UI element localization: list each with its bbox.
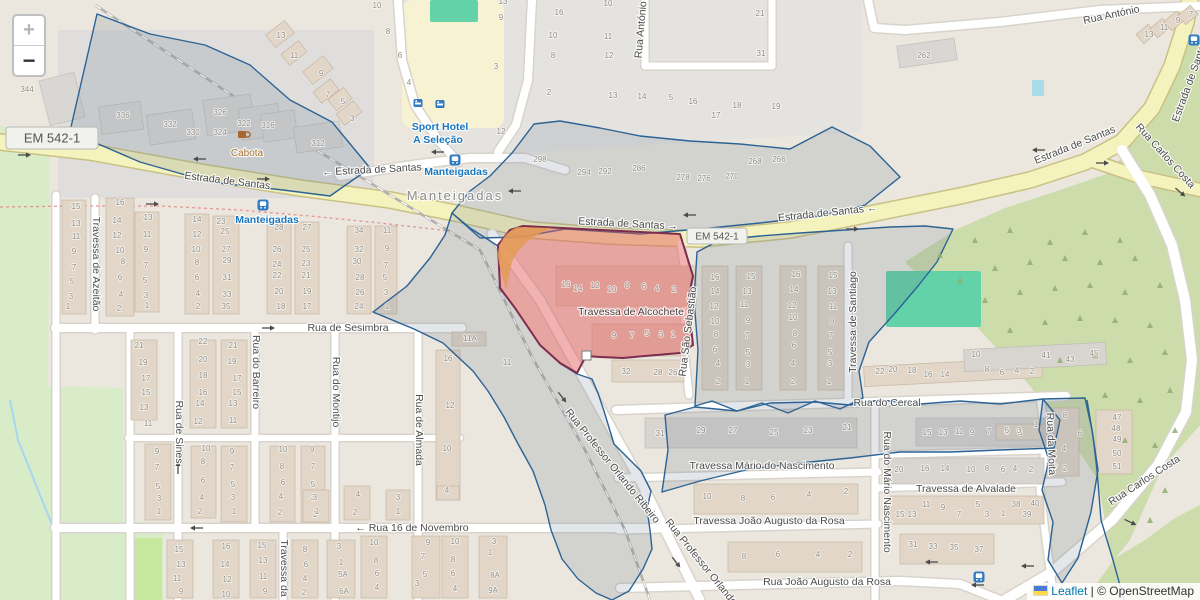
- house-number: 5: [156, 482, 161, 491]
- house-number: 8: [195, 258, 200, 267]
- poi-label: Manteigadas: [424, 166, 488, 178]
- hotel-icon-bed: [437, 104, 443, 106]
- house-number: 20: [889, 365, 898, 374]
- house-number: 294: [577, 168, 591, 177]
- building: [190, 340, 216, 428]
- house-number: 5: [669, 93, 674, 102]
- building: [221, 340, 247, 428]
- zoom-out-button[interactable]: −: [14, 46, 44, 75]
- house-number: 17: [142, 374, 151, 383]
- house-number: 16: [222, 542, 231, 551]
- house-number: 13: [177, 560, 186, 569]
- house-number: 1: [385, 302, 390, 311]
- house-number: 5: [311, 480, 316, 489]
- house-number: 31: [223, 273, 232, 282]
- house-number: 4: [791, 359, 796, 368]
- house-number: 8: [985, 365, 990, 374]
- house-number: 9: [970, 428, 975, 437]
- house-number: 27: [303, 223, 312, 232]
- hotel-icon: [414, 99, 423, 107]
- house-number: 9: [426, 538, 431, 547]
- house-number: 8: [280, 462, 285, 471]
- house-number: 6: [375, 569, 380, 578]
- house-number: 4: [816, 550, 821, 559]
- street-label: ← Rua 16 de Novembro: [355, 522, 468, 534]
- house-number: 286: [632, 164, 646, 173]
- house-number: 278: [676, 173, 690, 182]
- attribution-bar: Leaflet | © OpenStreetMap: [1027, 583, 1200, 600]
- house-number: 6: [1000, 368, 1005, 377]
- house-number: 6: [1078, 429, 1083, 438]
- house-number: 4: [196, 289, 201, 298]
- house-number: 18: [908, 366, 917, 375]
- house-number: 11A: [463, 334, 477, 343]
- house-number: 6: [304, 560, 309, 569]
- house-number: 6: [771, 493, 776, 502]
- house-number: 6: [118, 273, 123, 282]
- house-number: 3: [157, 494, 162, 503]
- house-number: 2: [196, 302, 201, 311]
- house-number: 14: [790, 285, 799, 294]
- house-number: 4: [1013, 464, 1018, 473]
- street-label: Rua de Sesimbra: [307, 322, 388, 334]
- house-number: 14: [711, 287, 720, 296]
- street-label: Travessa de Azeitão: [90, 217, 102, 312]
- house-number: 34: [355, 226, 364, 235]
- house-number: 16: [924, 370, 933, 379]
- house-number: 5: [828, 348, 833, 357]
- house-number: 13: [828, 287, 837, 296]
- street-label: Travessa João Augusto da Rosa: [693, 515, 845, 527]
- house-number: 11: [143, 230, 152, 239]
- house-number: 3: [1017, 426, 1022, 435]
- house-number: 3: [144, 291, 149, 300]
- house-number: 8A: [490, 571, 500, 580]
- bus-icon-wheel: [264, 207, 266, 209]
- house-number: 262: [917, 51, 931, 60]
- house-number: 8: [201, 457, 206, 466]
- house-number: 11: [604, 32, 613, 41]
- house-number: 16: [444, 354, 453, 363]
- hotel-icon-pillow: [437, 101, 439, 103]
- house-number: 48: [1112, 424, 1121, 433]
- house-number: 6: [451, 569, 456, 578]
- house-number: 40: [1031, 499, 1040, 508]
- house-number: 1: [1001, 509, 1006, 518]
- house-number: 268: [748, 157, 762, 166]
- vertex-marker[interactable]: [582, 351, 591, 360]
- house-number: 3: [350, 114, 355, 123]
- leaflet-link[interactable]: Leaflet: [1051, 584, 1087, 598]
- house-number: 3: [828, 359, 833, 368]
- house-number: 2: [1030, 367, 1035, 376]
- house-number: 20: [895, 465, 904, 474]
- house-number: 8: [121, 257, 126, 266]
- bus-icon-body: [452, 156, 458, 161]
- house-number: 16: [562, 280, 571, 289]
- house-number: 15: [233, 388, 242, 397]
- house-number: 4: [200, 493, 205, 502]
- house-number: 5: [231, 480, 236, 489]
- house-number: 330: [186, 128, 200, 137]
- house-number: 13: [499, 0, 508, 6]
- house-number: 51: [1113, 462, 1122, 471]
- house-number: 4: [279, 492, 284, 501]
- map-canvas[interactable]: EM 542-1EM 542-1Estrada de Santas← Estra…: [0, 0, 1200, 600]
- house-number: 13: [743, 287, 752, 296]
- cafe-label: Cabota: [231, 148, 264, 159]
- house-number: 26: [669, 368, 678, 377]
- house-number: 292: [598, 167, 612, 176]
- poi-label: A Seleção: [413, 134, 463, 146]
- zoom-in-button[interactable]: +: [14, 16, 44, 46]
- house-number: 7: [72, 263, 77, 272]
- house-number: 20: [199, 355, 208, 364]
- house-number: 14: [221, 560, 230, 569]
- house-number: 4: [655, 284, 660, 293]
- building: [728, 542, 862, 572]
- street-label: Rua João Augusto da Rosa: [763, 576, 891, 588]
- house-number: 6: [398, 51, 403, 60]
- house-number: 9: [612, 331, 617, 340]
- house-number: 15: [923, 428, 932, 437]
- house-number: 14: [941, 370, 950, 379]
- house-number: 8: [386, 27, 391, 36]
- house-number: 20: [275, 287, 284, 296]
- street-label: Rua da Moita: [1044, 412, 1058, 475]
- house-number: 13: [144, 213, 153, 222]
- house-number: 10: [789, 313, 798, 322]
- house-number: 11: [173, 574, 182, 583]
- house-number: 7: [155, 463, 160, 472]
- house-number: 8: [714, 330, 719, 339]
- house-number: 8: [303, 545, 308, 554]
- flag-bottom-stripe: [1034, 591, 1047, 596]
- house-number: 3: [337, 542, 342, 551]
- house-number: 9: [230, 447, 235, 456]
- house-number: 7: [311, 462, 316, 471]
- house-number: 6: [201, 476, 206, 485]
- bus-icon-body: [976, 573, 982, 578]
- house-number: 21: [229, 341, 238, 350]
- house-number: 38: [1012, 500, 1021, 509]
- building: [436, 350, 460, 500]
- house-number: 7: [144, 261, 149, 270]
- house-number: 16: [689, 97, 698, 106]
- house-number: 12: [605, 51, 614, 60]
- bus-stop-icon: [974, 572, 985, 583]
- house-number: 11: [829, 302, 838, 311]
- house-number: 6: [792, 341, 797, 350]
- house-number: 7: [1189, 10, 1194, 19]
- house-number: 1: [339, 558, 344, 567]
- bus-icon-wheel: [456, 162, 458, 164]
- house-number: 18: [733, 101, 742, 110]
- house-number: 41: [1042, 351, 1051, 360]
- building: [295, 222, 319, 314]
- hotel-icon-bed: [415, 103, 421, 105]
- house-number: 1: [745, 377, 750, 386]
- hotel-icon-pillow: [415, 100, 417, 102]
- house-number: 10: [370, 538, 379, 547]
- house-number: 15: [142, 388, 151, 397]
- house-number: 10: [549, 31, 558, 40]
- building: [62, 200, 86, 314]
- house-number: 28: [275, 223, 284, 232]
- house-number: 9: [941, 503, 946, 512]
- bus-icon-wheel: [452, 162, 454, 164]
- street-label: Rua do Montijo: [330, 357, 342, 428]
- house-number: 8: [741, 494, 746, 503]
- house-number: 35: [222, 302, 231, 311]
- house-number: 17: [712, 111, 721, 120]
- house-number: 7: [326, 90, 331, 99]
- house-number: 1: [396, 507, 401, 516]
- house-number: 11: [740, 300, 749, 309]
- house-number: 3: [415, 579, 420, 588]
- house-number: 8: [451, 555, 456, 564]
- house-number: 6: [642, 282, 647, 291]
- house-number: 2: [791, 377, 796, 386]
- road-ref-label: EM 542-1: [695, 232, 739, 243]
- house-number: 13: [277, 31, 286, 40]
- house-number: 4: [303, 574, 308, 583]
- bus-stop-icon: [258, 200, 269, 211]
- house-number: 13: [1145, 30, 1154, 39]
- house-number: 3: [494, 62, 499, 71]
- house-number: 22: [273, 271, 282, 280]
- house-number: 3: [492, 537, 497, 546]
- house-number: 3: [231, 493, 236, 502]
- sports-pitch-top: [430, 0, 478, 22]
- house-number: 9: [179, 587, 184, 596]
- street-label: Travessa de Santiago: [847, 271, 859, 373]
- house-number: 9: [319, 69, 324, 78]
- bus-icon-wheel: [976, 579, 978, 581]
- house-number: 7: [384, 261, 389, 270]
- poi-label: Sport Hotel: [412, 121, 469, 133]
- house-number: 4: [1062, 444, 1067, 453]
- house-number: 23: [302, 259, 311, 268]
- house-number: 8: [985, 464, 990, 473]
- house-number: 37: [975, 545, 984, 554]
- bus-icon-wheel: [260, 207, 262, 209]
- house-number: 11: [922, 500, 931, 509]
- house-number: 8: [1063, 411, 1068, 420]
- house-number: 26: [356, 288, 365, 297]
- house-number: 270: [725, 172, 739, 181]
- house-number: 9: [385, 244, 390, 253]
- house-number: 8: [742, 552, 747, 561]
- bus-icon-wheel: [980, 579, 982, 581]
- house-number: 9: [499, 13, 504, 22]
- house-number: 336: [116, 111, 130, 120]
- house-number: 27: [729, 426, 738, 435]
- house-number: 33: [929, 542, 938, 551]
- house-number: 2: [117, 304, 122, 313]
- building: [347, 226, 371, 314]
- house-number: 4: [1015, 366, 1020, 375]
- house-number: 10: [703, 492, 712, 501]
- house-number: 11: [144, 419, 153, 428]
- house-number: 10: [116, 246, 125, 255]
- house-number: 9: [263, 587, 268, 596]
- house-number: 10: [451, 537, 460, 546]
- house-number: 1: [145, 301, 150, 310]
- house-number: 16: [792, 270, 801, 279]
- place-label: Manteigadas: [407, 188, 503, 203]
- house-number: 10: [192, 245, 201, 254]
- house-number: 18: [199, 371, 208, 380]
- house-number: 6: [776, 550, 781, 559]
- bus-icon-wheel: [1191, 42, 1193, 44]
- house-number: 12: [194, 417, 203, 426]
- house-number: 6: [713, 345, 718, 354]
- house-number: 22: [876, 367, 885, 376]
- house-number: 13: [140, 403, 149, 412]
- house-number: 11: [503, 358, 512, 367]
- house-number: 15: [175, 545, 184, 554]
- house-number: 14: [574, 284, 583, 293]
- house-number: 5A: [338, 570, 348, 579]
- house-number: 276: [697, 174, 711, 183]
- house-number: 3: [313, 493, 318, 502]
- house-number: 14: [941, 464, 950, 473]
- house-number: 6: [1001, 465, 1006, 474]
- house-number: 4: [119, 290, 124, 299]
- house-number: 324: [213, 128, 227, 137]
- house-number: 10: [202, 444, 211, 453]
- house-number: 1: [232, 507, 237, 516]
- house-number: 266: [772, 155, 786, 164]
- house-number: 4: [445, 486, 450, 495]
- bus-icon-body: [1191, 36, 1197, 41]
- house-number: 14: [196, 399, 205, 408]
- zoom-control: + −: [12, 14, 46, 77]
- house-number: 13: [609, 91, 618, 100]
- house-number: 15: [896, 510, 905, 519]
- house-number: 7: [421, 552, 426, 561]
- house-number: 5: [143, 276, 148, 285]
- house-number: 10: [443, 444, 452, 453]
- house-number: 2: [716, 377, 721, 386]
- house-number: 25: [770, 428, 779, 437]
- house-number: 3: [659, 330, 664, 339]
- house-number: 33: [223, 290, 232, 299]
- house-number: 16: [555, 8, 564, 17]
- house-number: 2: [844, 487, 849, 496]
- house-number: 16: [711, 273, 720, 282]
- house-number: 31: [757, 49, 766, 58]
- house-number: 15: [747, 272, 756, 281]
- pool: [1032, 80, 1044, 96]
- house-number: 5: [976, 500, 981, 509]
- house-number: 28: [356, 273, 365, 282]
- house-number: 7: [957, 510, 962, 519]
- house-number: 12: [193, 230, 202, 239]
- house-number: 4: [453, 584, 458, 593]
- street-label: Travessa de Alvalade: [916, 483, 1016, 495]
- house-number: 14: [113, 216, 122, 225]
- house-number: 6: [281, 478, 286, 487]
- house-number: 13: [939, 428, 948, 437]
- house-number: 25: [302, 245, 311, 254]
- map-tiles: EM 542-1EM 542-1Estrada de Santas← Estra…: [0, 0, 1200, 600]
- house-number: 21: [756, 9, 765, 18]
- street-label: Travessa da: [278, 539, 290, 597]
- house-number: 49: [1113, 435, 1122, 444]
- house-number: 18: [277, 302, 286, 311]
- house-number: 316: [261, 121, 275, 130]
- house-number: 13: [72, 219, 81, 228]
- house-number: 11: [72, 232, 81, 241]
- house-number: 2: [1063, 464, 1068, 473]
- house-number: 23: [804, 426, 813, 435]
- house-number: 326: [213, 108, 227, 117]
- bus-stop-icon: [450, 155, 461, 166]
- house-number: 11: [259, 572, 268, 581]
- house-number: 19: [139, 358, 148, 367]
- house-number: 13: [229, 399, 238, 408]
- house-number: 5: [645, 329, 650, 338]
- house-number: 7: [745, 331, 750, 340]
- house-number: 9A: [488, 586, 498, 595]
- house-number: 10: [967, 465, 976, 474]
- house-number: 2: [353, 508, 358, 517]
- house-number: 4: [356, 490, 361, 499]
- house-number: 4: [375, 583, 380, 592]
- house-number: 3: [985, 510, 990, 519]
- house-number: 9: [1176, 16, 1181, 25]
- house-number: 11: [290, 51, 299, 60]
- house-number: 1: [315, 507, 320, 516]
- house-number: 43: [1066, 355, 1075, 364]
- house-number: 21: [135, 341, 144, 350]
- house-number: 3: [69, 292, 74, 301]
- house-number: 2: [302, 588, 307, 597]
- house-number: 9: [746, 316, 751, 325]
- street-label: Rua do Cercal: [853, 397, 920, 409]
- bus-icon-body: [260, 201, 266, 206]
- house-number: 11: [1160, 23, 1169, 32]
- house-number: 10: [279, 445, 288, 454]
- house-number: 5: [70, 277, 75, 286]
- house-number: 4: [407, 78, 412, 87]
- house-number: 10: [604, 0, 613, 8]
- house-number: 11: [955, 427, 964, 436]
- building: [694, 484, 858, 514]
- house-number: 332: [163, 120, 177, 129]
- house-number: 15: [829, 271, 838, 280]
- house-number: 14: [193, 215, 202, 224]
- house-number: 12: [591, 281, 600, 290]
- house-number: 9: [72, 247, 77, 256]
- house-number: 322: [237, 119, 251, 128]
- house-number: 13: [908, 510, 917, 519]
- house-number: 11: [229, 416, 238, 425]
- house-number: 35: [950, 543, 959, 552]
- house-number: 2: [547, 88, 552, 97]
- hotel-icon: [436, 100, 445, 108]
- house-number: 6A: [339, 587, 349, 596]
- house-number: 8: [793, 329, 798, 338]
- house-number: 2: [672, 285, 677, 294]
- house-number: 19: [772, 102, 781, 111]
- house-number: 21: [302, 271, 311, 280]
- house-number: 23: [217, 217, 226, 226]
- house-number: 10: [972, 350, 981, 359]
- house-number: 5: [746, 348, 751, 357]
